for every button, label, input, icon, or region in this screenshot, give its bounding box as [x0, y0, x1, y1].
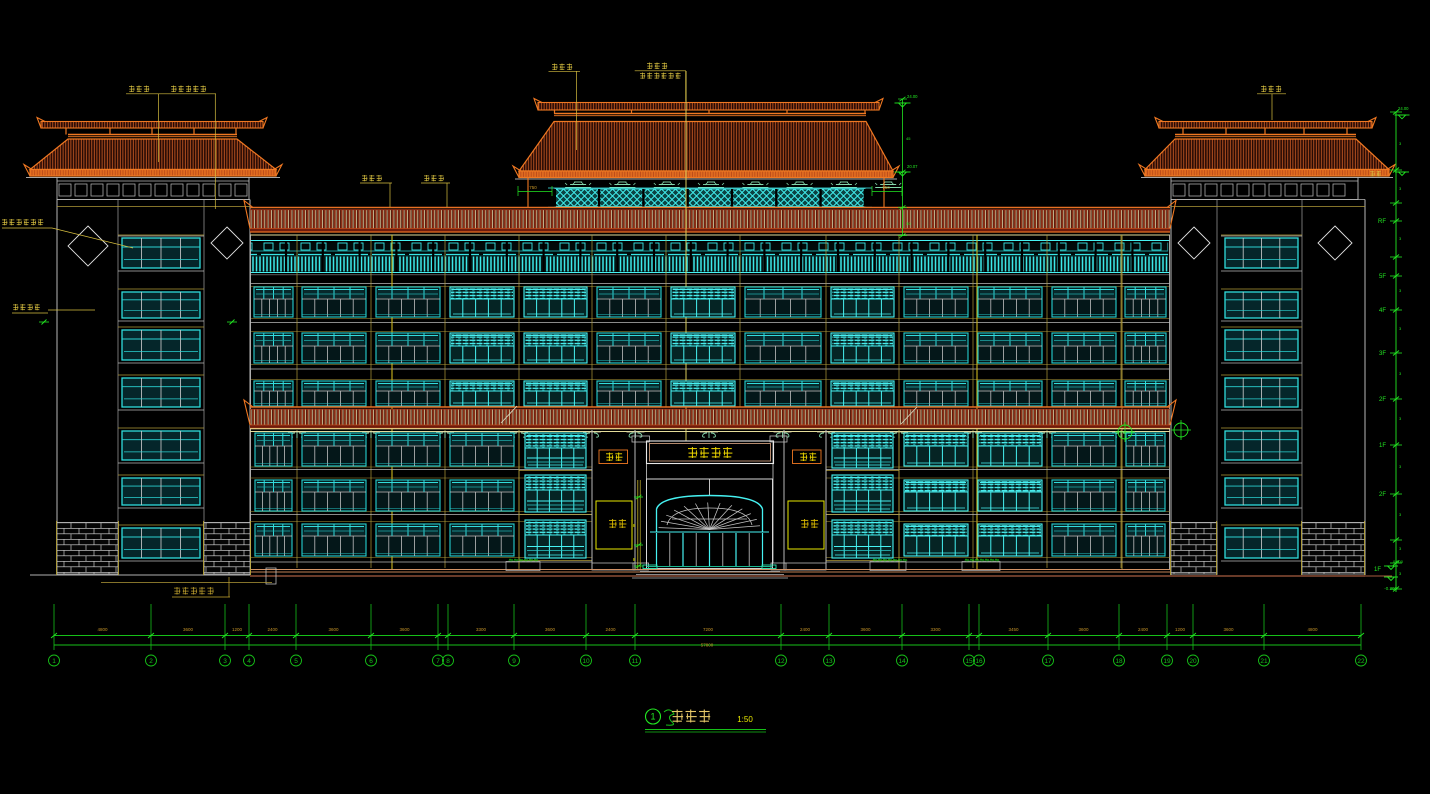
svg-text:1F: 1F	[1374, 567, 1381, 573]
svg-text:1:50: 1:50	[737, 715, 753, 724]
svg-text:6: 6	[369, 658, 373, 665]
svg-text:1200: 1200	[232, 627, 243, 632]
svg-text:22: 22	[1357, 658, 1365, 665]
svg-text:750: 750	[529, 185, 537, 190]
svg-text:4800: 4800	[97, 627, 108, 632]
svg-text:57800: 57800	[701, 643, 714, 648]
svg-text:3600: 3600	[1078, 627, 1089, 632]
svg-text:-0.300: -0.300	[1384, 586, 1397, 591]
svg-text:2400: 2400	[267, 627, 278, 632]
svg-text:3600: 3600	[1223, 627, 1234, 632]
svg-text:4: 4	[247, 658, 251, 665]
svg-text:24.00: 24.00	[907, 94, 918, 99]
svg-text:17: 17	[1044, 658, 1052, 665]
svg-text:5F: 5F	[1379, 274, 1386, 280]
svg-text:8: 8	[446, 658, 450, 665]
svg-text:1: 1	[650, 712, 655, 722]
svg-text:3300: 3300	[476, 627, 487, 632]
svg-text:2400: 2400	[800, 627, 811, 632]
svg-text:13: 13	[825, 658, 833, 665]
svg-text:3600: 3600	[545, 627, 556, 632]
svg-text:11: 11	[632, 658, 639, 665]
svg-text:18: 18	[1115, 658, 1123, 665]
svg-text:20: 20	[1189, 658, 1197, 665]
svg-text:30: 30	[906, 221, 911, 226]
svg-text:14: 14	[898, 658, 906, 665]
svg-text:45: 45	[906, 136, 911, 141]
svg-text:16: 16	[975, 658, 983, 665]
svg-text:10: 10	[582, 658, 590, 665]
svg-text:9: 9	[512, 658, 516, 665]
svg-text:3F: 3F	[1379, 351, 1386, 357]
svg-text:12: 12	[777, 658, 785, 665]
svg-text:750: 750	[882, 185, 890, 190]
svg-text:4F: 4F	[1379, 308, 1386, 314]
svg-text:1: 1	[52, 658, 56, 665]
svg-text:RF: RF	[1378, 219, 1386, 225]
svg-text:15: 15	[965, 658, 973, 665]
svg-text:19: 19	[1163, 658, 1171, 665]
svg-text:21: 21	[1260, 658, 1268, 665]
svg-text:3600: 3600	[183, 627, 194, 632]
svg-text:2400: 2400	[605, 627, 616, 632]
svg-text:3600: 3600	[860, 627, 871, 632]
svg-text:2F: 2F	[1379, 397, 1386, 403]
svg-text:1F: 1F	[1379, 443, 1386, 449]
svg-text:20.07: 20.07	[907, 164, 918, 169]
svg-text:3450: 3450	[1008, 627, 1019, 632]
svg-text:24.00: 24.00	[1398, 106, 1409, 111]
svg-text:2: 2	[149, 658, 153, 665]
svg-text:2400: 2400	[1138, 627, 1149, 632]
svg-text:7: 7	[436, 658, 440, 665]
svg-text:4800: 4800	[1307, 627, 1318, 632]
svg-text:5: 5	[294, 658, 298, 665]
svg-text:3300: 3300	[930, 627, 941, 632]
svg-text:3: 3	[223, 658, 227, 665]
svg-text:7200: 7200	[703, 627, 714, 632]
svg-text:0.000: 0.000	[1393, 559, 1404, 564]
svg-text:1200: 1200	[1175, 627, 1186, 632]
svg-text:2F: 2F	[1379, 492, 1386, 498]
svg-text:3600: 3600	[399, 627, 410, 632]
svg-text:3600: 3600	[328, 627, 339, 632]
